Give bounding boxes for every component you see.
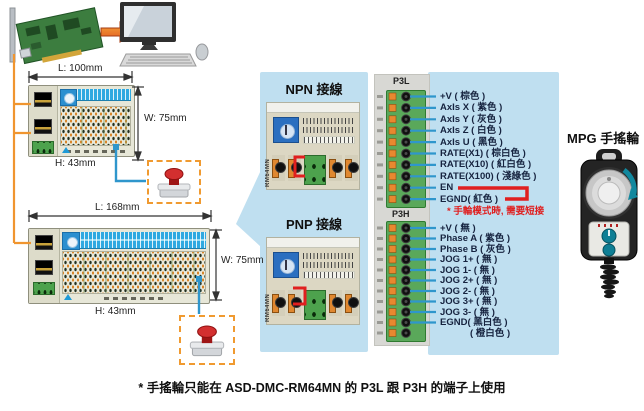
module2-height-label: H: 43mm bbox=[95, 306, 136, 317]
module2-terminal-grid bbox=[62, 251, 206, 294]
module1-height-label: H: 43mm bbox=[55, 158, 96, 169]
handwheel-image bbox=[576, 148, 642, 300]
p3h-connector-label: P3H bbox=[392, 209, 410, 219]
module1-label-strip bbox=[60, 148, 131, 154]
module2-image bbox=[28, 228, 210, 304]
dip-ticks bbox=[303, 118, 353, 124]
rotary-dial-icon bbox=[62, 232, 80, 250]
rj45-port-icon bbox=[35, 260, 53, 275]
pin-number-strip bbox=[303, 271, 355, 279]
module1-image bbox=[28, 85, 135, 157]
pnp-section-title: PNP 接線 bbox=[260, 214, 368, 233]
terminal-icon bbox=[329, 155, 342, 181]
dip-ticks bbox=[303, 262, 353, 268]
emergency-stop-box bbox=[179, 315, 235, 365]
rj45-port-icon bbox=[35, 235, 53, 250]
terminal-icon bbox=[329, 290, 342, 316]
rotary-switch-icon bbox=[273, 117, 299, 143]
module1-length-label: L: 100mm bbox=[58, 63, 102, 74]
terminal-icon bbox=[345, 155, 358, 181]
module2-header-strip bbox=[80, 232, 206, 249]
npn-jumper-mark bbox=[277, 151, 311, 181]
pnp-closeup-image: RM64MN bbox=[266, 237, 360, 325]
power-terminal-icon bbox=[33, 282, 55, 295]
pin-number-strip bbox=[303, 136, 355, 144]
module-model-label: RM64MN bbox=[265, 147, 271, 187]
rj45-port-icon bbox=[34, 119, 52, 134]
emergency-stop-icon bbox=[149, 162, 199, 202]
p3l-connector bbox=[386, 90, 426, 208]
module1-terminal-grid bbox=[60, 106, 131, 146]
pcb-board bbox=[14, 8, 103, 67]
npn-section-title: NPN 接線 bbox=[260, 79, 368, 98]
module2-length-label: L: 168mm bbox=[95, 202, 139, 213]
terminal-icon bbox=[272, 290, 285, 316]
dip-ticks bbox=[303, 253, 353, 259]
computer-icon bbox=[118, 2, 210, 70]
rotary-dial-icon bbox=[60, 89, 77, 106]
power-terminal-icon bbox=[32, 141, 54, 154]
module2-width-label: W: 75mm bbox=[221, 255, 264, 266]
callout-wedge bbox=[236, 170, 261, 247]
short-circuit-note: * 手輪模式時, 需要短接 bbox=[447, 203, 544, 217]
module1-port-column bbox=[29, 86, 58, 156]
terminal-icon bbox=[345, 290, 358, 316]
mpg-title: MPG 手搖輪 bbox=[567, 128, 639, 147]
module-model-label: RM64MN bbox=[265, 282, 271, 322]
emergency-stop-icon bbox=[181, 317, 233, 363]
p3l-connector-label: P3L bbox=[393, 76, 410, 86]
npn-closeup-image: RM64MN bbox=[266, 102, 360, 190]
bottom-caption: * 手搖輪只能在 ASD-DMC-RM64MN 的 P3L 跟 P3H 的端子上… bbox=[0, 377, 644, 396]
emergency-stop-box bbox=[147, 160, 201, 204]
rj45-port-icon bbox=[34, 92, 52, 107]
wiring-diagram: P3L P3H NPN 接線 PNP 接線 RM64MN bbox=[0, 0, 644, 411]
module2-port-column bbox=[29, 229, 60, 303]
p3h-connector bbox=[386, 221, 426, 342]
module2-label-strip bbox=[62, 295, 206, 301]
dip-ticks bbox=[303, 127, 353, 133]
closeup-top-strip bbox=[267, 103, 359, 113]
rotary-switch-icon bbox=[273, 252, 299, 278]
pnp-jumper-mark bbox=[285, 282, 319, 312]
module1-width-label: W: 75mm bbox=[144, 113, 187, 124]
module1-header-strip bbox=[77, 89, 131, 101]
closeup-top-strip bbox=[267, 238, 359, 248]
